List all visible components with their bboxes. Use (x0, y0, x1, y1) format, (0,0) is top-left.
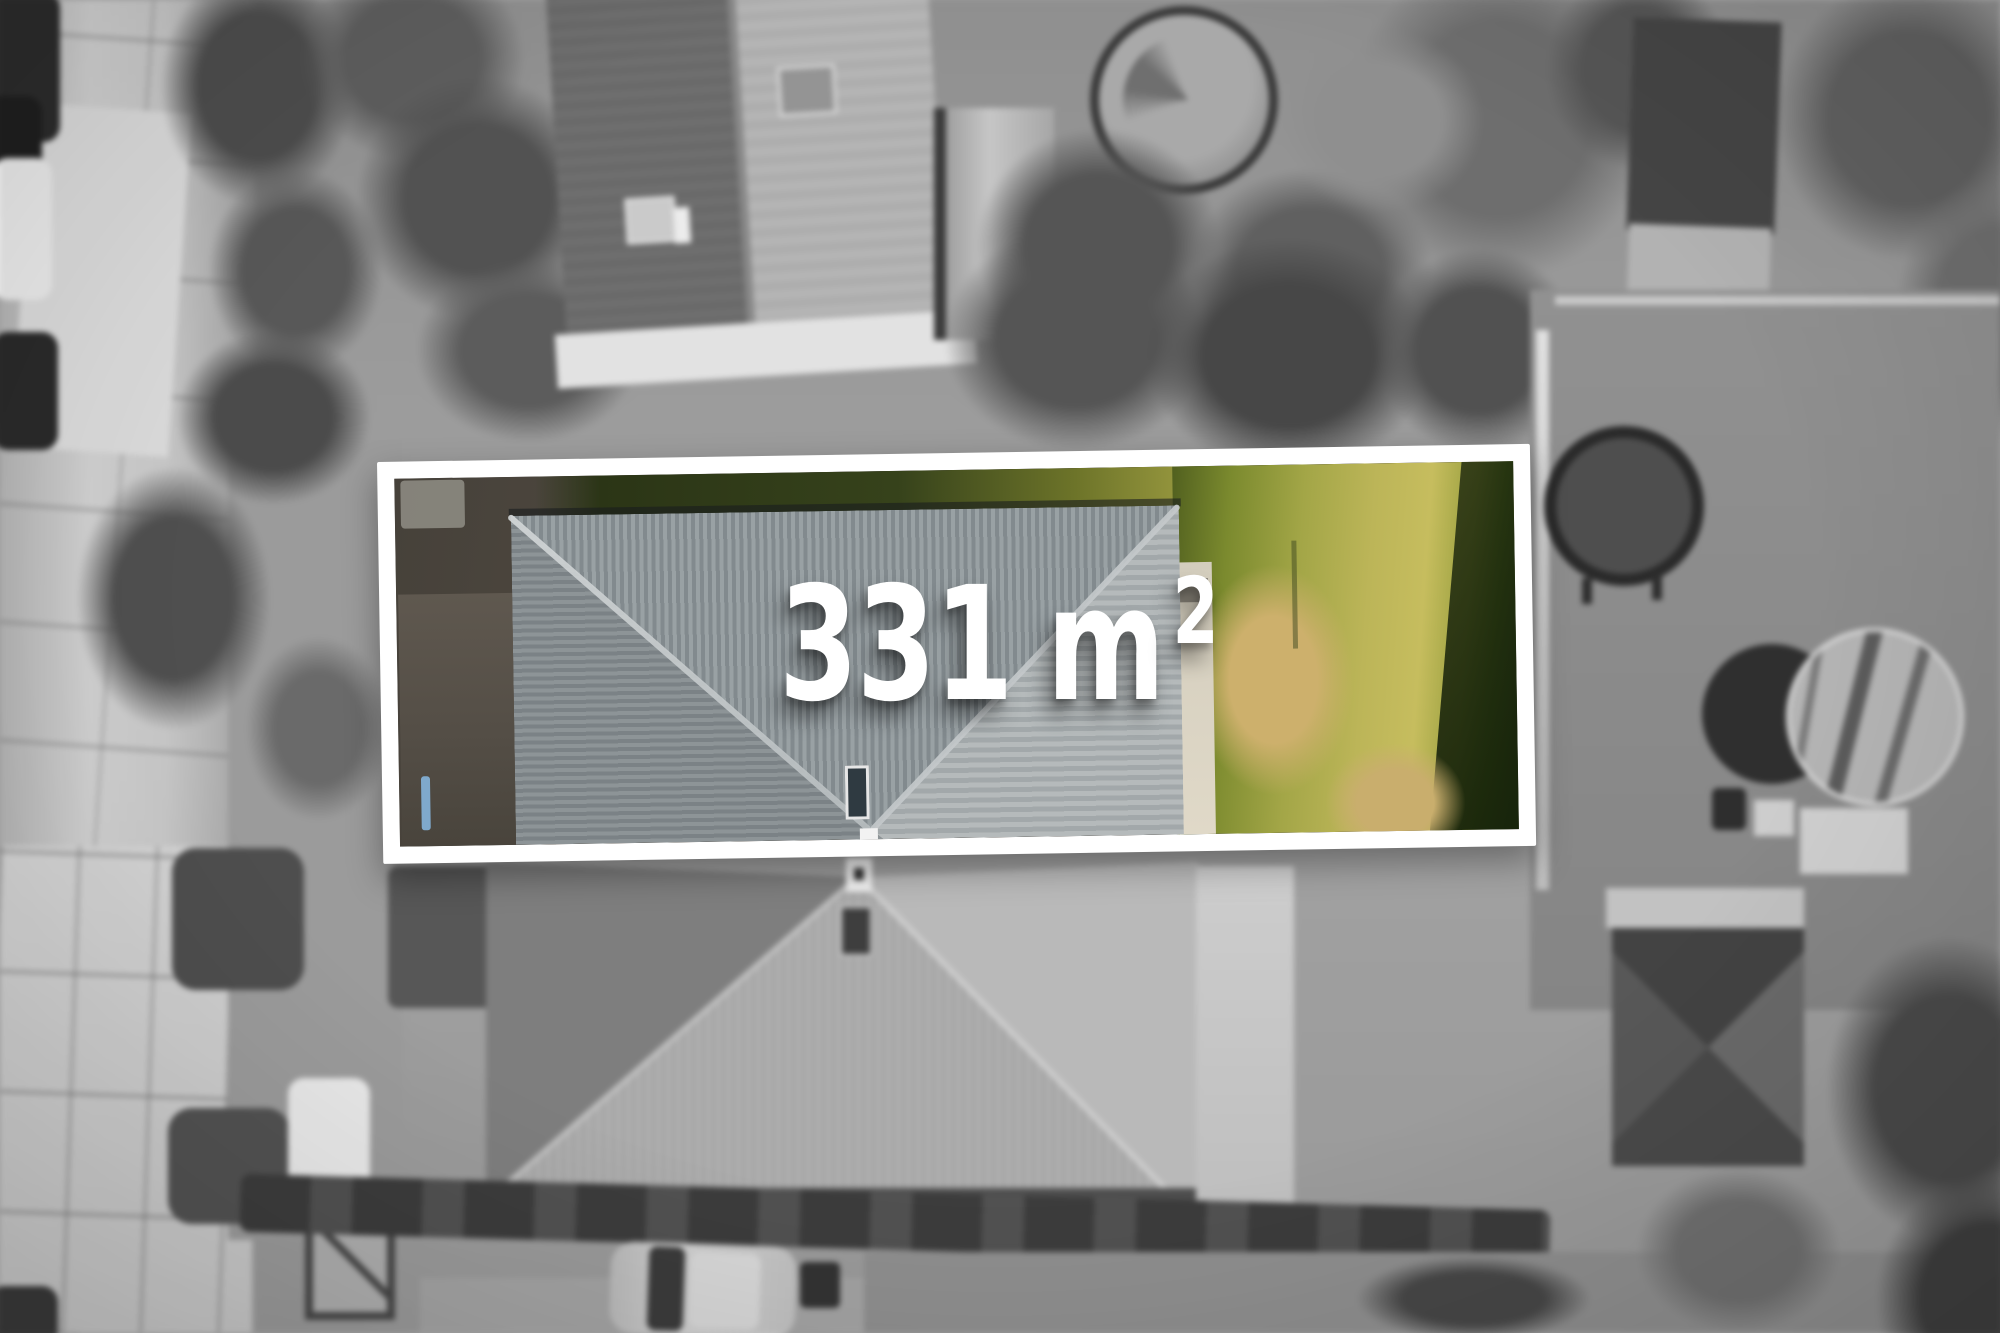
area-label: 331m2 (779, 566, 1217, 724)
aerial-property-photo: 331m2 (0, 0, 2000, 1333)
utility-box (400, 480, 465, 529)
dirt-patch (1325, 742, 1467, 864)
roof-vent (860, 828, 878, 844)
skylight (845, 765, 870, 819)
area-unit: m (1047, 553, 1164, 737)
blue-pipe (421, 776, 431, 830)
area-value: 331 (779, 553, 1012, 737)
area-exponent: 2 (1172, 558, 1217, 665)
